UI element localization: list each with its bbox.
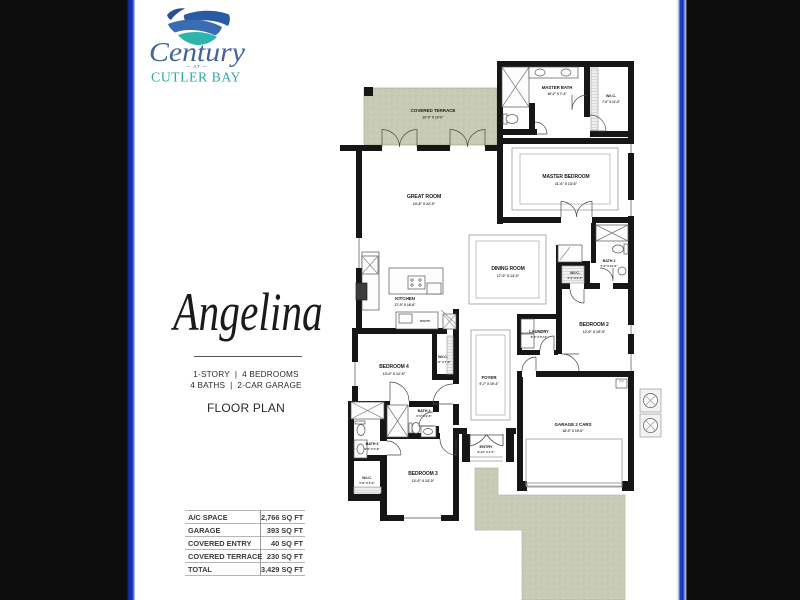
- svg-text:BATH 4: BATH 4: [418, 409, 432, 413]
- svg-text:6'-0" X 9'-6": 6'-0" X 9'-6": [416, 414, 432, 418]
- svg-text:17'-0" X 14'-0": 17'-0" X 14'-0": [497, 274, 520, 278]
- svg-text:BEDROOM 2: BEDROOM 2: [579, 322, 609, 328]
- svg-text:12'-6" X 15'-0": 12'-6" X 15'-0": [583, 330, 606, 334]
- svg-text:24'-8" X 22'-0": 24'-8" X 22'-0": [413, 202, 436, 206]
- svg-text:8'-10" X 4'-2": 8'-10" X 4'-2": [478, 450, 496, 454]
- svg-text:6'-6" X 5'-11": 6'-6" X 5'-11": [531, 335, 548, 339]
- svg-text:FOYER: FOYER: [481, 375, 497, 380]
- svg-text:12'-0" X 13'-0": 12'-0" X 13'-0": [412, 479, 435, 483]
- svg-text:18'-0" X 19'-0": 18'-0" X 19'-0": [562, 429, 584, 433]
- svg-text:LAUNDRY: LAUNDRY: [529, 329, 549, 334]
- svg-text:BATH 3: BATH 3: [366, 442, 379, 446]
- svg-text:16'-2" X 7'-4": 16'-2" X 7'-4": [547, 92, 567, 96]
- svg-text:9'-7" X 19'-4": 9'-7" X 19'-4": [479, 382, 499, 386]
- svg-text:3'-4" X 6'-6": 3'-4" X 6'-6": [567, 276, 583, 280]
- svg-text:COVERED TERRACE: COVERED TERRACE: [411, 108, 456, 113]
- svg-text:GREAT ROOM: GREAT ROOM: [407, 194, 441, 200]
- svg-text:5'-6" X 10'-6": 5'-6" X 10'-6": [601, 264, 619, 268]
- svg-text:5'-8" X 6'-0": 5'-8" X 6'-0": [359, 481, 375, 485]
- svg-text:KITCHEN: KITCHEN: [395, 296, 415, 301]
- svg-text:13'-0" X 12'-6": 13'-0" X 12'-6": [383, 372, 406, 376]
- svg-text:DINING ROOM: DINING ROOM: [491, 266, 524, 272]
- svg-text:BATH 2: BATH 2: [603, 259, 616, 263]
- svg-text:4'-6" X 7'-2": 4'-6" X 7'-2": [435, 360, 451, 364]
- svg-text:MASTER BATH: MASTER BATH: [542, 85, 573, 90]
- svg-text:MASTER BEDROOM: MASTER BEDROOM: [542, 174, 589, 180]
- svg-text:BEDROOM 3: BEDROOM 3: [408, 471, 438, 477]
- svg-text:BEDROOM 4: BEDROOM 4: [379, 364, 409, 370]
- svg-text:PANTRY: PANTRY: [420, 319, 431, 323]
- svg-text:W.I.C.: W.I.C.: [570, 271, 580, 275]
- svg-text:GARAGE 2 CARS: GARAGE 2 CARS: [555, 422, 592, 427]
- svg-text:11'-6" X 13'-6": 11'-6" X 13'-6": [555, 182, 578, 186]
- svg-text:7'-0" X 11'-4": 7'-0" X 11'-4": [602, 100, 620, 104]
- svg-text:9'-9" X 5'-6": 9'-9" X 5'-6": [364, 447, 380, 451]
- svg-text:W.I.C.: W.I.C.: [606, 93, 616, 98]
- svg-text:ENTRY: ENTRY: [480, 444, 493, 449]
- svg-text:17'-0" X 16'-6": 17'-0" X 16'-6": [394, 303, 416, 307]
- svg-text:W.I.C.: W.I.C.: [438, 355, 448, 359]
- svg-text:W.I.C.: W.I.C.: [362, 476, 372, 480]
- svg-text:22'-0" X 10'-0": 22'-0" X 10'-0": [422, 116, 444, 120]
